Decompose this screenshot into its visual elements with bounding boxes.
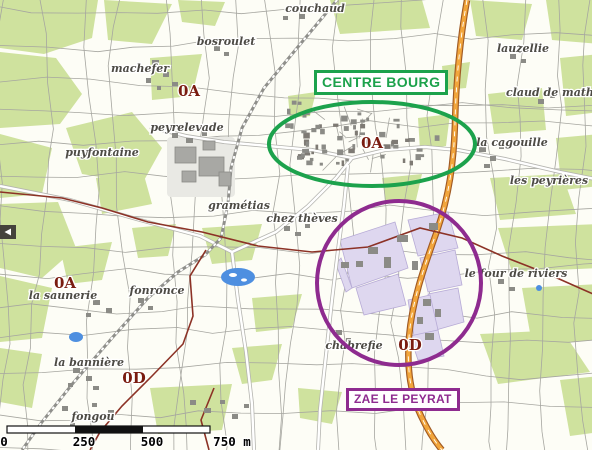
building [303,133,310,139]
vegetation-patch [418,114,450,150]
building [416,154,421,160]
place-label: la bannière [54,356,124,369]
building [306,161,312,166]
building [521,59,526,63]
building [320,163,323,166]
building [295,232,301,236]
zone-label: 0A [54,274,76,292]
industrial-building [203,141,215,150]
building [138,298,144,303]
building [341,262,349,268]
map-canvas[interactable]: couchaudbosrouletmacheferpeyrelevadepuyf… [0,0,600,450]
zone-label: 0D [122,369,145,387]
building [509,287,515,291]
building [360,120,365,123]
place-label: fongou [70,410,114,423]
building [336,162,340,165]
building [421,154,425,157]
building [538,99,544,104]
building [244,404,249,408]
place-label: bosroulet [197,35,256,48]
building [311,152,314,155]
scale-bar-tick-label: 250 [73,434,96,449]
building [368,247,378,254]
building [232,414,238,419]
building [356,261,363,267]
building [68,383,73,387]
pond-island [229,273,237,277]
building [341,116,348,122]
building [322,145,326,150]
pond-island [241,278,247,281]
place-label: puyfontaine [65,146,139,159]
building [287,109,291,115]
building [423,299,431,306]
building [342,160,345,166]
building [284,226,290,231]
building [353,125,356,129]
building [366,118,369,122]
vegetation-patch [498,224,600,272]
place-label: gramétias [208,199,270,212]
building [435,135,440,141]
building [435,309,441,317]
building [333,124,338,127]
building [301,131,306,134]
building [86,313,91,317]
building [322,150,327,154]
map-edge-strip [592,0,600,450]
water-point [536,285,542,291]
building [393,119,399,122]
industrial-building [175,147,196,163]
building [417,317,423,324]
building [344,126,349,131]
scale-bar-tick-label: 0 [0,434,8,449]
building [316,145,319,150]
building [380,155,384,159]
building [297,156,302,160]
place-label: les peyrières [510,174,588,187]
vegetation-patch [546,0,600,44]
place-label: la cagouille [476,136,548,149]
building [310,158,314,161]
building [93,386,99,390]
building [337,136,342,141]
building [190,400,196,405]
zae-le-peyrat-label-box: ZAE LE PEYRAT [346,388,460,411]
building [384,144,391,149]
building [292,101,297,105]
zone-label: 0A [361,134,383,152]
building [224,52,229,56]
building [360,124,365,128]
building [186,138,193,143]
building [106,308,112,313]
zone-label: 0A [178,82,200,100]
building [285,123,290,128]
building [484,164,490,168]
building [204,408,211,413]
place-label: couchaud [285,2,345,15]
industrial-building [182,171,196,182]
building [417,148,423,151]
centre-bourg-label-box: CENTRE BOURG [314,70,448,95]
building [302,149,309,153]
building [146,78,151,83]
building [490,156,496,161]
building [425,333,434,340]
building [403,159,406,164]
building [429,223,438,230]
building [358,112,362,115]
building [346,159,349,162]
building [384,257,391,268]
building [290,123,293,129]
scale-bar-tick-label: 500 [141,434,164,449]
building [405,139,410,142]
place-label: claud de mathet [506,86,600,99]
map-background [0,0,600,450]
building [148,306,153,310]
collapse-arrow-button[interactable] [0,225,16,239]
building [92,403,97,407]
building [397,124,400,128]
building [397,235,408,242]
building [355,131,358,136]
scale-bar-tick-label: 750 m [213,434,251,449]
building [157,86,161,90]
building [86,376,92,381]
place-label: fonronce [129,284,185,297]
industrial-building [219,172,231,186]
building [392,140,398,144]
building [306,142,309,147]
building [298,102,302,105]
building [337,149,343,155]
zone-label: 0D [398,336,421,354]
building [62,406,68,411]
building [412,261,418,270]
building [410,161,413,166]
pond [69,332,83,342]
place-label: chez thèves [266,212,337,225]
building [320,129,325,135]
building [351,119,357,124]
scale-bar-segment [75,426,143,433]
place-label: peyrelevade [150,121,223,134]
place-label: lauzellie [497,42,549,55]
building [315,125,320,129]
building [283,16,288,20]
place-label: machefer [111,62,170,75]
pond [221,268,255,286]
building [220,400,225,404]
map-viewport[interactable]: couchaudbosrouletmacheferpeyrelevadepuyf… [0,0,600,450]
building [348,149,355,154]
